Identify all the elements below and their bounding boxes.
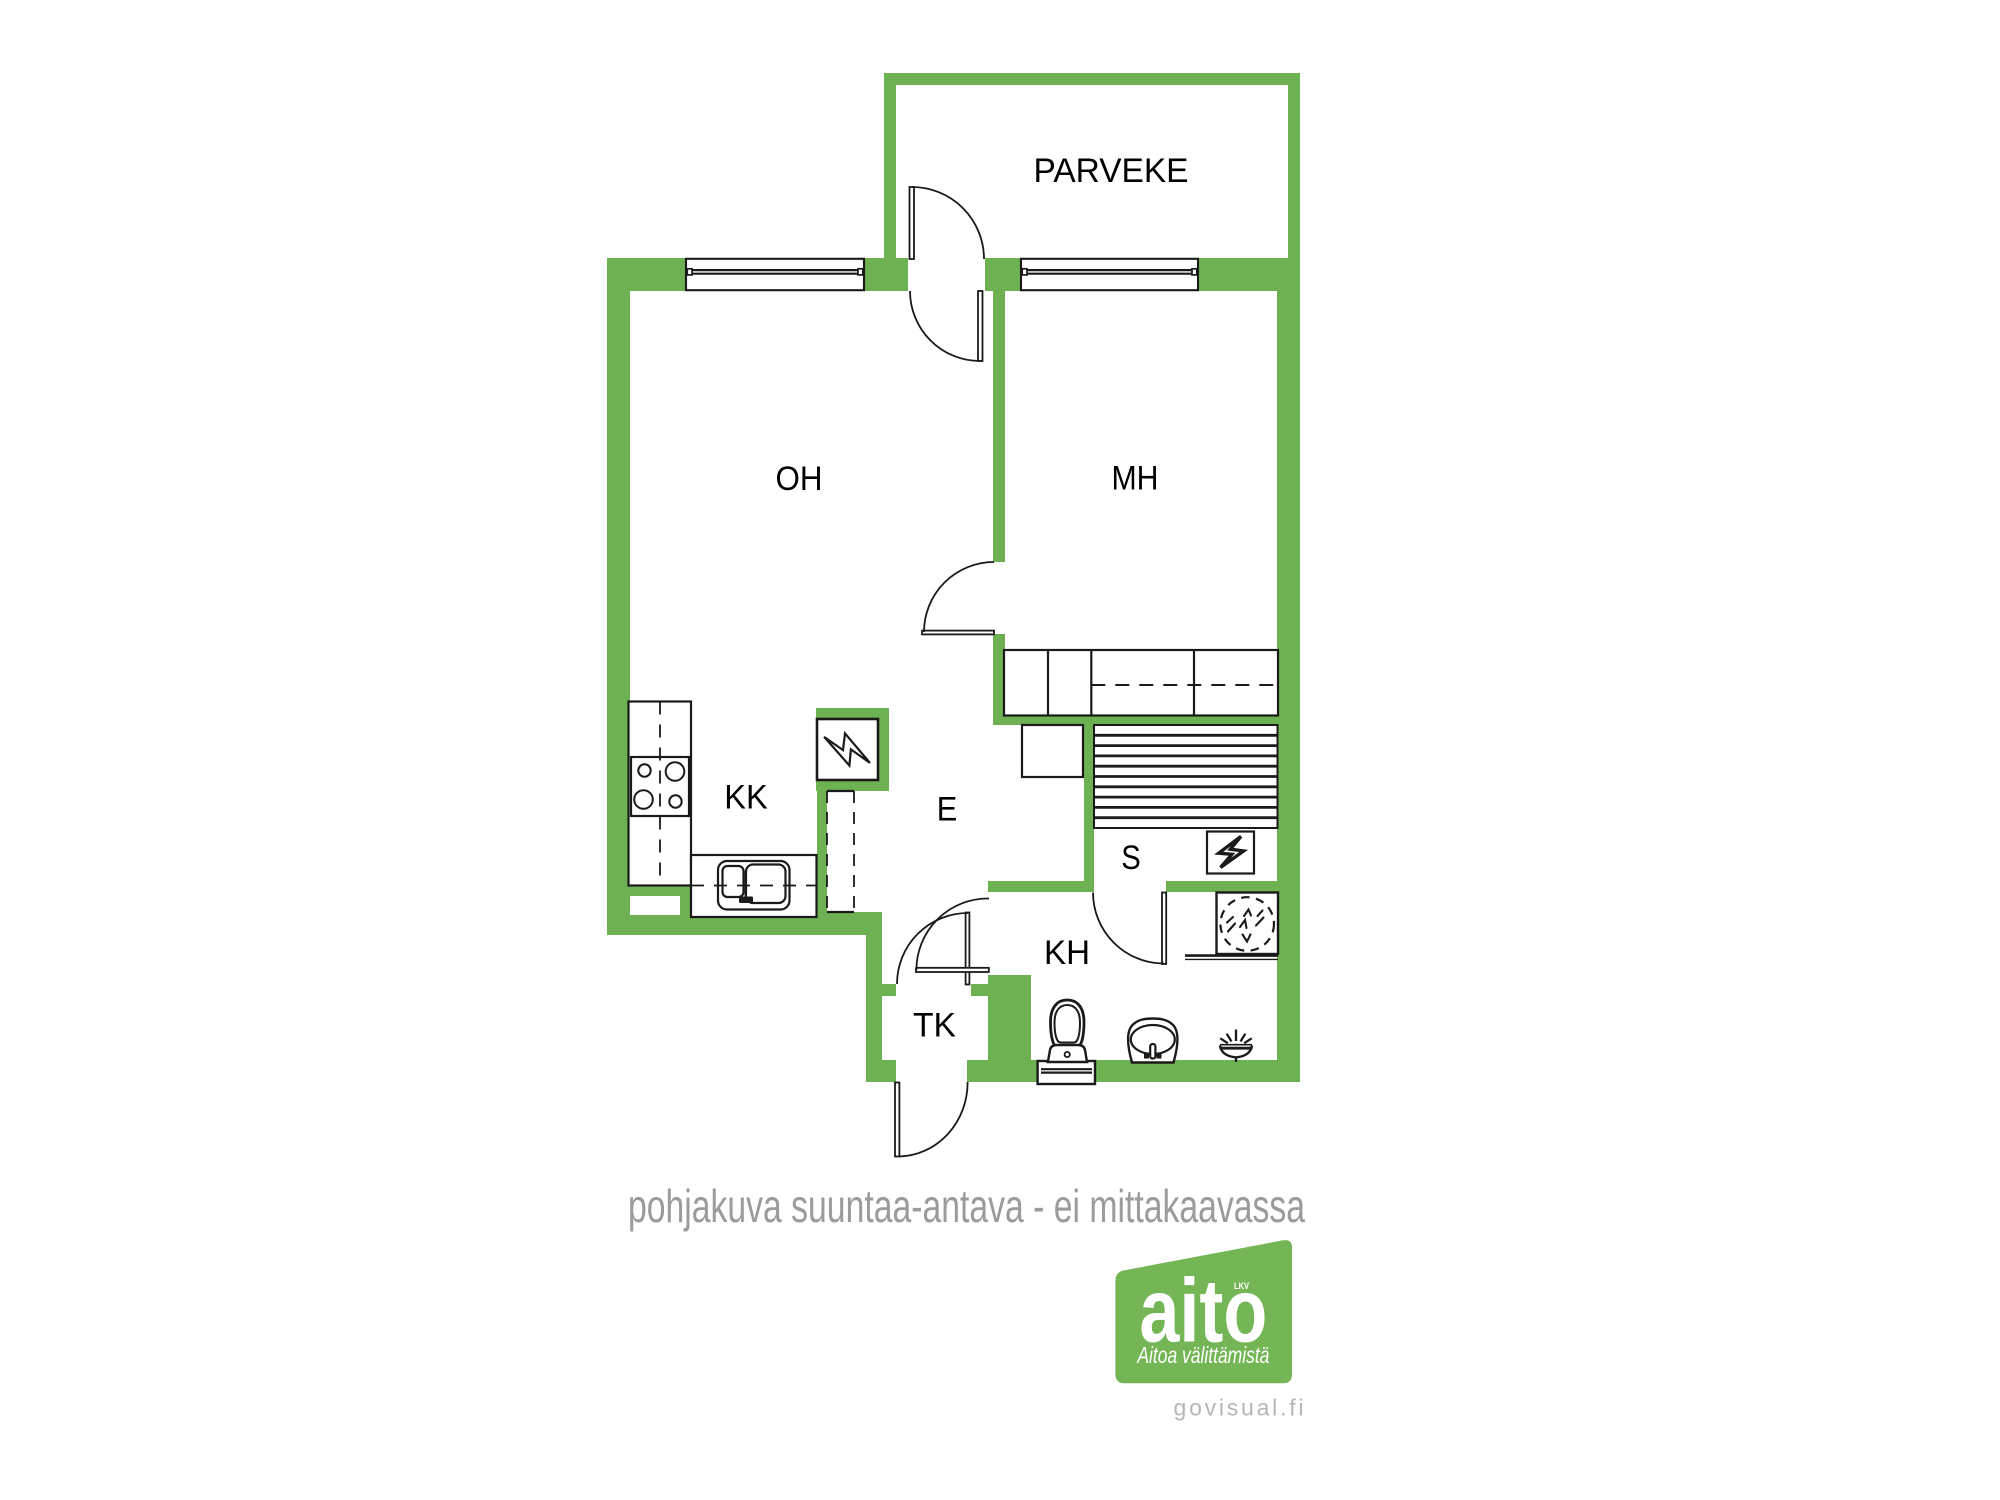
- svg-text:OH: OH: [776, 460, 823, 498]
- svg-text:E: E: [937, 791, 958, 829]
- svg-text:Aitoa välittämistä: Aitoa välittämistä: [1136, 1342, 1270, 1368]
- svg-text:MH: MH: [1112, 460, 1159, 498]
- svg-text:LKV: LKV: [1234, 1281, 1249, 1291]
- svg-text:pohjakuva suuntaa-antava - ei: pohjakuva suuntaa-antava - ei mittakaava…: [628, 1180, 1305, 1232]
- svg-text:PARVEKE: PARVEKE: [1034, 152, 1189, 190]
- svg-text:KH: KH: [1044, 934, 1090, 972]
- svg-text:S: S: [1121, 839, 1141, 877]
- svg-text:KK: KK: [724, 778, 768, 816]
- svg-text:TK: TK: [913, 1007, 956, 1045]
